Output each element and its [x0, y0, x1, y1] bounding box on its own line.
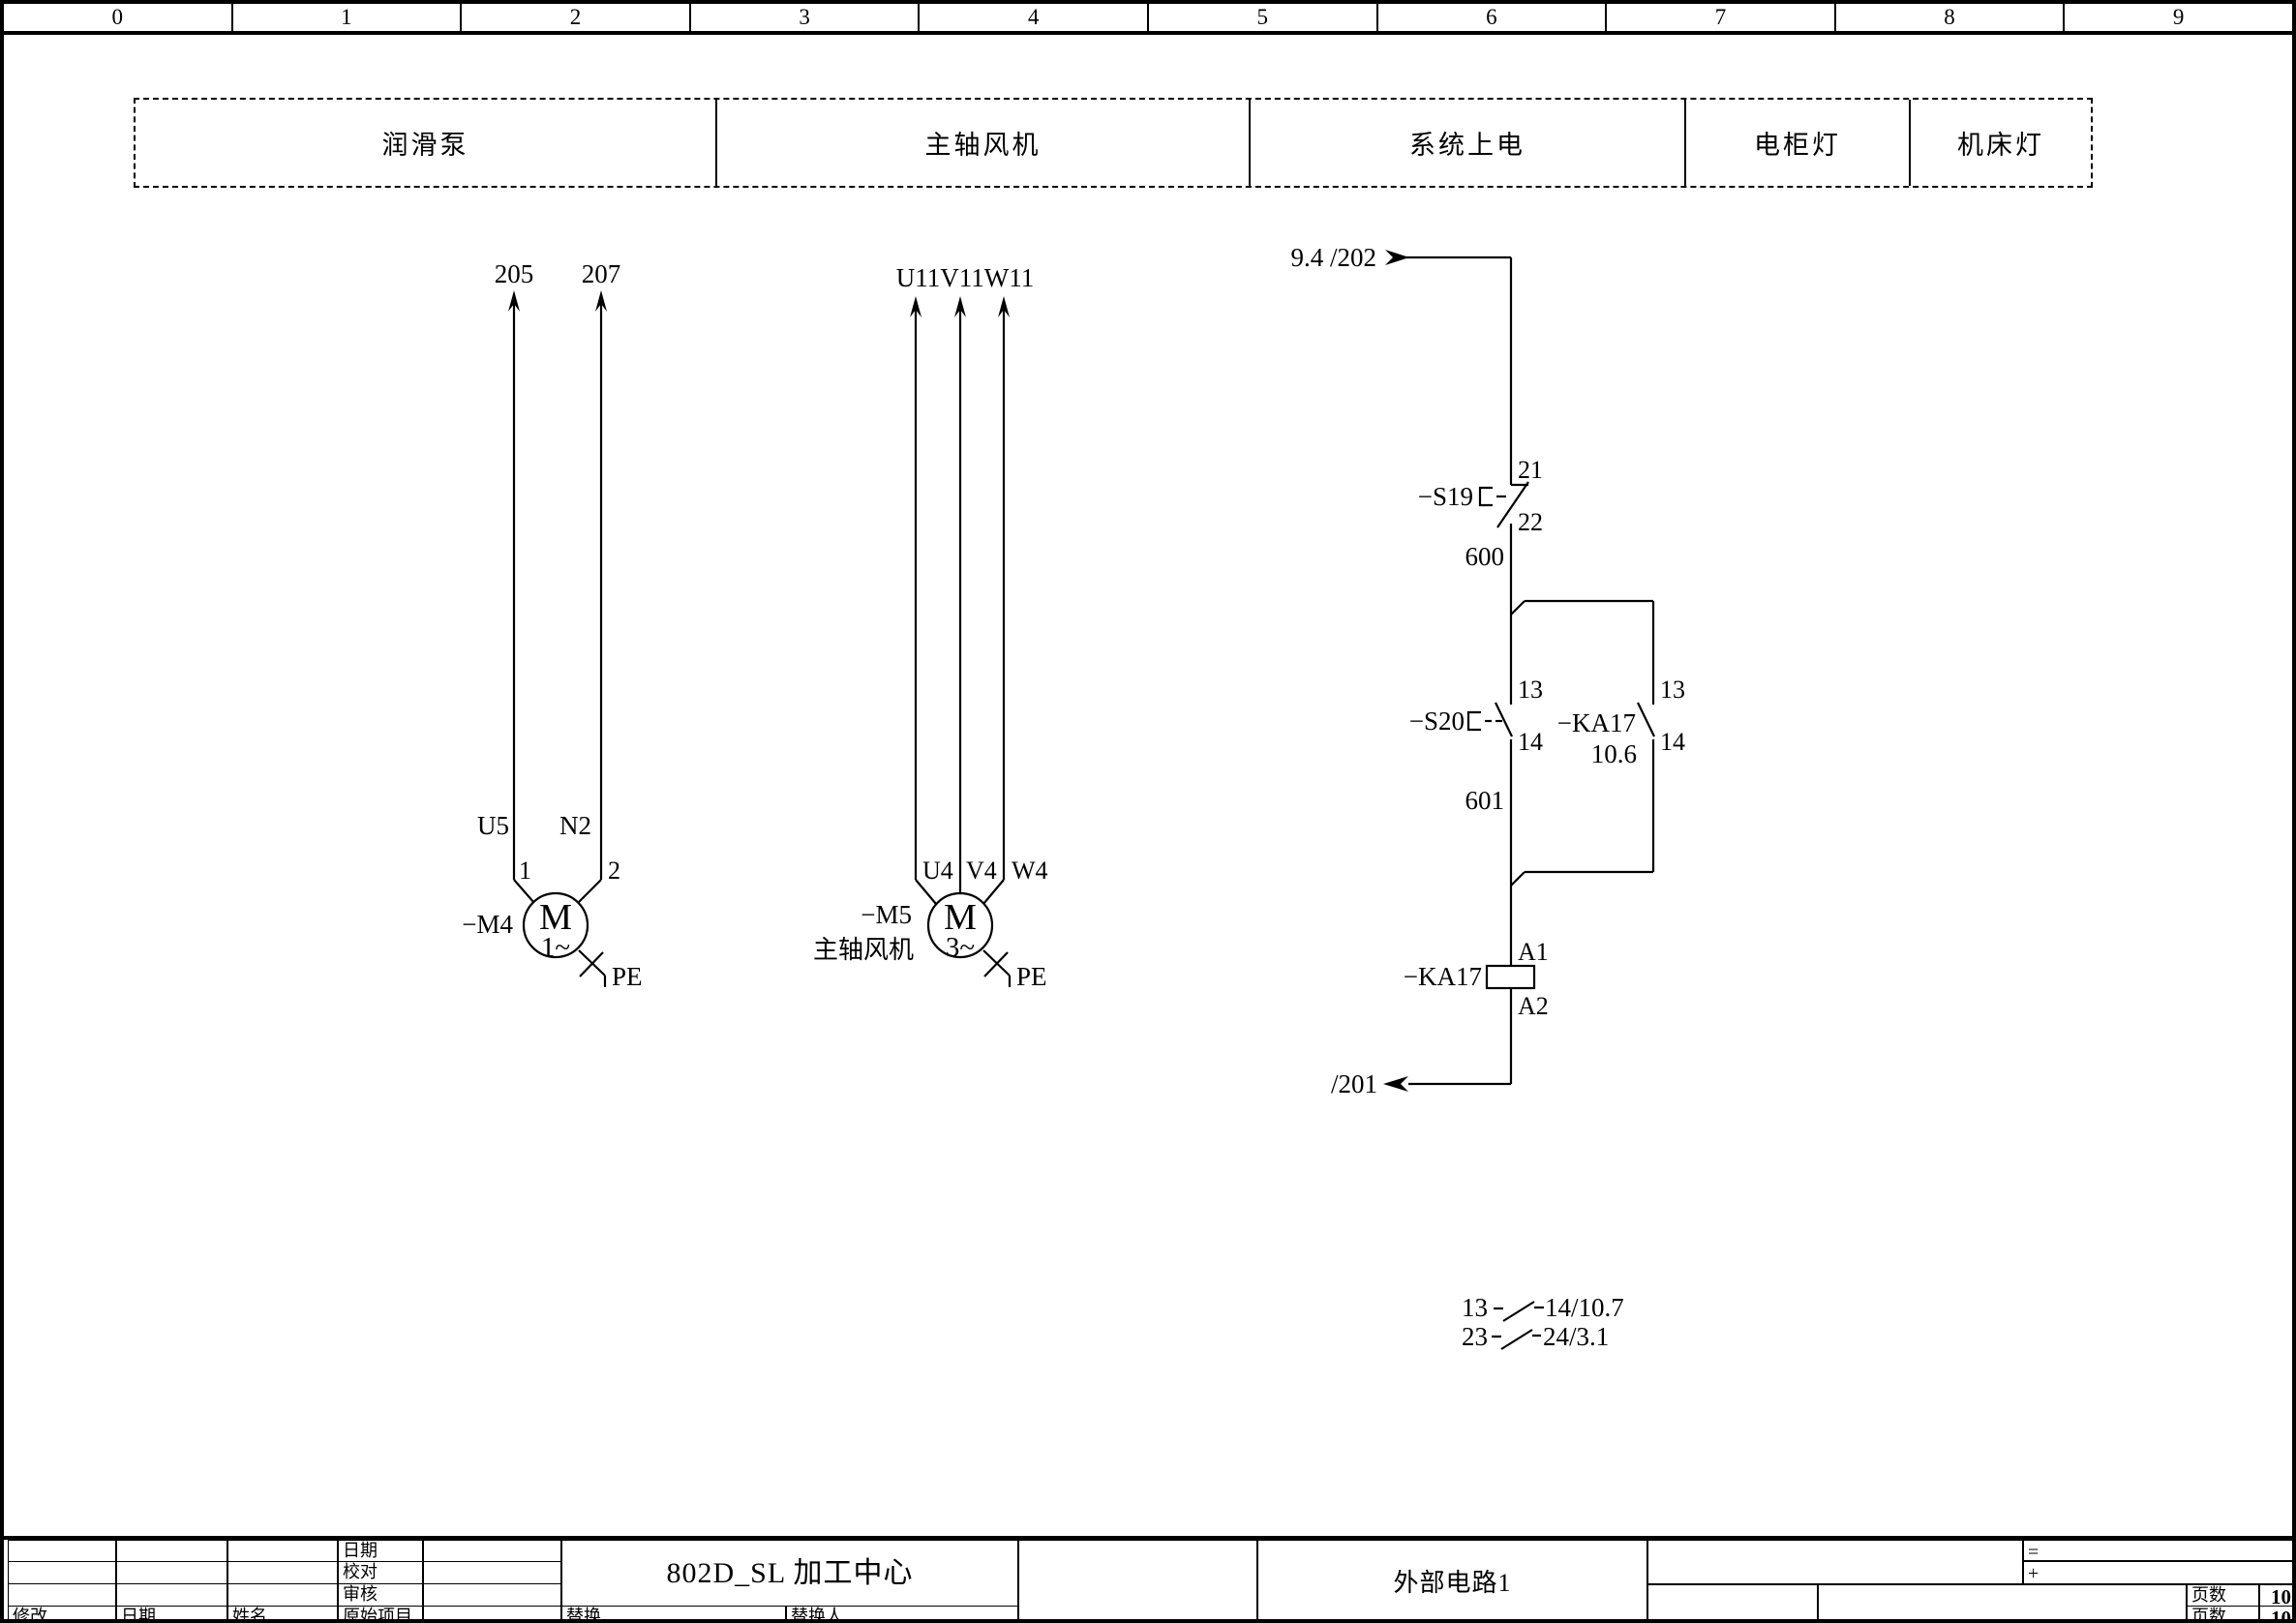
spindle-fan-circuit: U11V11W11 U4 V4 W4 −M5 主轴风机 M 3~ PE	[813, 263, 1048, 991]
pushbutton-actuator-icon	[1468, 712, 1481, 730]
device-tag-s19: −S19	[1418, 482, 1473, 511]
pushbutton-actuator-icon	[1480, 488, 1493, 505]
tb-empty-cell	[8, 1561, 116, 1584]
tb-label-audit: 审核	[338, 1583, 423, 1607]
page-ref-source: 9.4 /202	[1290, 243, 1376, 272]
wire-label-600: 600	[1465, 542, 1505, 571]
wire-labels-u11v11w11: U11V11W11	[896, 263, 1034, 292]
wire-label-u4: U4	[922, 857, 953, 885]
tb-project-title: 802D_SL 加工中心	[561, 1540, 1018, 1607]
tb-empty-cell	[227, 1583, 338, 1607]
tb-empty-cell	[227, 1540, 338, 1562]
tb-empty-cell	[423, 1606, 561, 1623]
tb-pages-label-bottom: 页数	[2187, 1606, 2259, 1623]
device-name-spindle-fan: 主轴风机	[813, 936, 914, 964]
relay-coil-symbol	[1487, 966, 1534, 988]
wire-label-205: 205	[495, 259, 534, 288]
tb-pages-label-top: 页数	[2187, 1584, 2259, 1607]
tb-ref-plus: +	[2023, 1561, 2296, 1584]
pe-label: PE	[1016, 962, 1047, 991]
tb-empty-cell	[116, 1583, 227, 1607]
page-ref-destination: /201	[1331, 1069, 1377, 1098]
xref-13: 13	[1462, 1293, 1488, 1322]
device-tag-m4: −M4	[462, 910, 513, 939]
tb-empty-cell	[227, 1561, 338, 1584]
schematic-sheet: 0 1 2 3 4 5 6 7 8 9 润滑泵 主轴风机 系统上电 电柜灯 机床…	[0, 0, 2296, 1623]
tb-sheet-title: 外部电路1	[1257, 1540, 1647, 1623]
tb-empty-cell	[116, 1561, 227, 1584]
tb-pages-value-bottom: 10	[2259, 1606, 2296, 1623]
tb-empty-cell	[8, 1583, 116, 1607]
terminal-1: 1	[519, 857, 531, 885]
lube-pump-circuit: 205 207 U5 N2 1 2 −M4 M 1~ PE	[462, 259, 642, 991]
tb-empty-cell	[423, 1561, 561, 1584]
s19-terminal-21: 21	[1518, 456, 1543, 484]
motor-phase: 1~	[541, 932, 570, 963]
wire-label-601: 601	[1465, 786, 1505, 815]
tb-ref-equals: =	[2023, 1540, 2296, 1561]
tb-empty-cell	[1018, 1540, 1257, 1623]
xref-24-3-1: 24/3.1	[1543, 1322, 1609, 1351]
tb-label-origin: 原始项目	[338, 1606, 423, 1623]
s20-terminal-14: 14	[1518, 728, 1543, 756]
tb-empty-cell	[1647, 1584, 1818, 1623]
s20-terminal-13: 13	[1518, 676, 1543, 704]
wire-label-u5: U5	[477, 811, 509, 840]
tb-label-date2: 日期	[116, 1606, 227, 1623]
device-tag-m5: −M5	[861, 900, 912, 929]
wire-label-n2: N2	[559, 811, 591, 840]
wire-label-w4: W4	[1012, 857, 1048, 885]
tb-label-check: 校对	[338, 1561, 423, 1584]
pe-label: PE	[612, 962, 643, 991]
coil-terminal-a2: A2	[1518, 992, 1549, 1020]
tb-empty-cell	[423, 1540, 561, 1562]
tb-empty-cell	[1647, 1540, 2023, 1584]
motor-phase: 3~	[946, 932, 975, 963]
ka17-contact-ref: 10.6	[1591, 739, 1637, 768]
device-tag-s20: −S20	[1409, 706, 1465, 736]
schematic-canvas: 205 207 U5 N2 1 2 −M4 M 1~ PE	[4, 4, 2296, 1623]
s19-terminal-22: 22	[1518, 508, 1543, 536]
ka17-terminal-14: 14	[1660, 728, 1685, 756]
tb-empty-cell	[116, 1540, 227, 1562]
tb-empty-cell	[8, 1540, 116, 1562]
wire-label-207: 207	[582, 259, 621, 288]
tb-pages-value-top: 10	[2259, 1584, 2296, 1607]
tb-empty-cell	[1818, 1584, 2187, 1623]
device-tag-ka17-coil: −KA17	[1404, 962, 1482, 991]
tb-label-modify: 修改	[8, 1606, 116, 1623]
terminal-2: 2	[608, 857, 620, 885]
title-block: 日期 校对 审核 修改 日期 姓名 原始项目 替换 替换人 802D_SL 加工…	[4, 1536, 2296, 1623]
tb-label-name: 姓名	[227, 1606, 338, 1623]
arrow-left-icon	[1383, 1076, 1408, 1092]
device-tag-ka17-contact: −KA17	[1557, 708, 1636, 737]
wire-label-v4: V4	[966, 857, 997, 885]
tb-label-date: 日期	[338, 1540, 423, 1562]
tb-label-replaced-by: 替换人	[786, 1606, 1018, 1623]
tb-empty-cell	[423, 1583, 561, 1607]
ka17-terminal-13: 13	[1660, 676, 1685, 704]
tb-label-replace: 替换	[561, 1606, 786, 1623]
xref-14-10-7: 14/10.7	[1545, 1293, 1624, 1322]
coil-terminal-a1: A1	[1518, 938, 1549, 966]
power-on-circuit: 9.4 /202 21 22 −S19 600 13 14 −S20 13 14…	[1290, 243, 1685, 1351]
xref-23: 23	[1462, 1322, 1488, 1351]
